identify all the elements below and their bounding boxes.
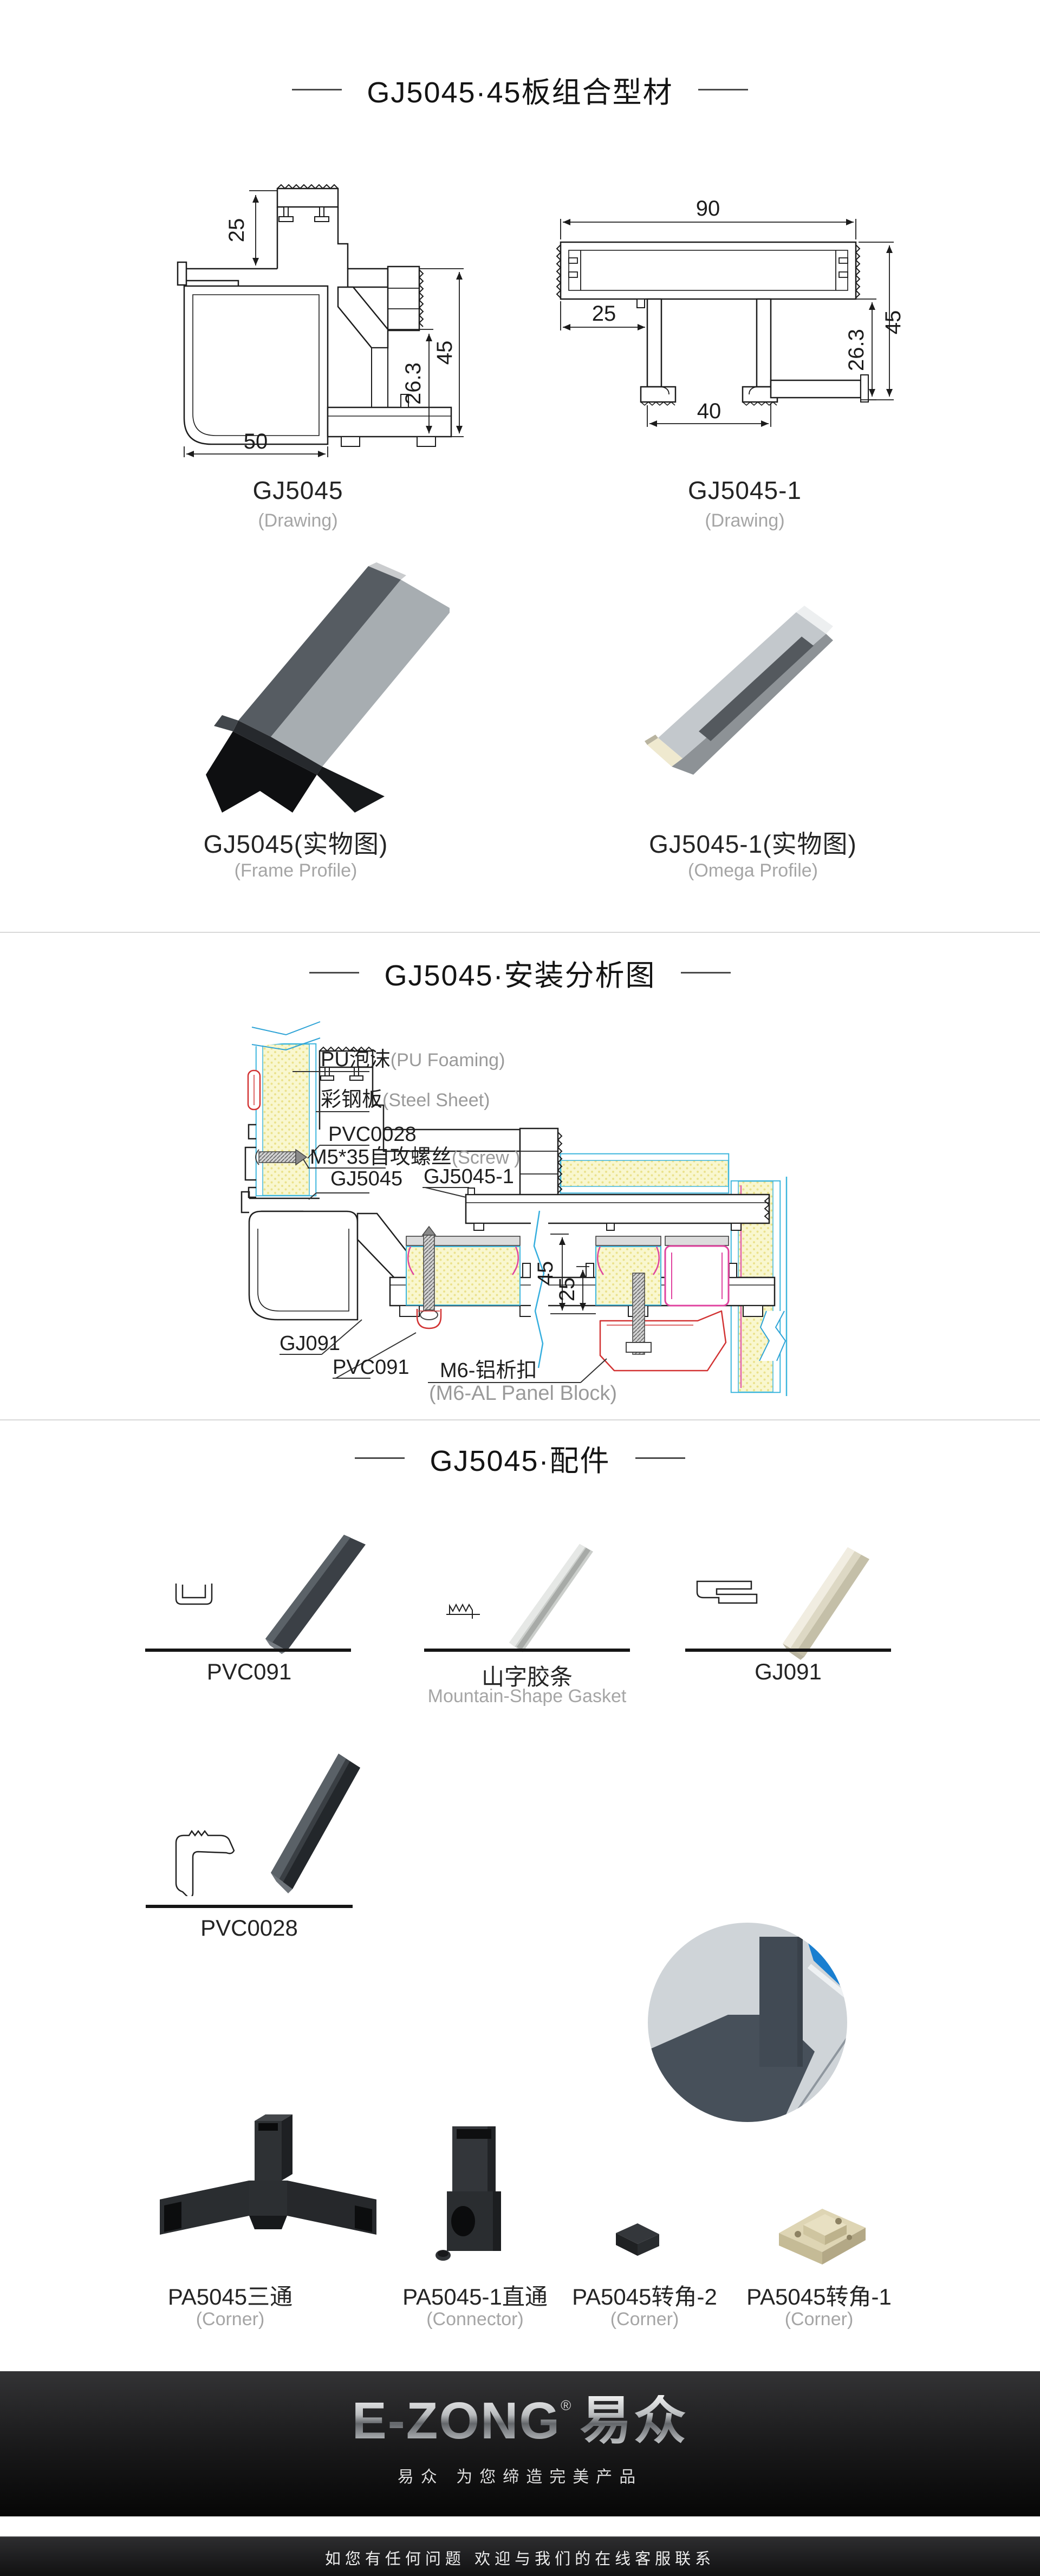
dim-45: 45 [433,341,457,365]
dim-50: 50 [244,430,268,453]
pa5045-corner-1-photo [773,2195,871,2268]
pa5045-corner-1-label-en: (Corner) [711,2309,927,2330]
dim-26-3: 26.3 [844,329,868,371]
title-dash-left [292,89,342,90]
section2-title-row: GJ5045·安装分析图 [0,953,1040,991]
anno-gj5045: GJ5045 [330,1167,402,1190]
anno-steel-sheet: 彩钢板(Steel Sheet) [321,1088,490,1111]
brand-logo: E-ZONG ® 易众 [352,2395,688,2447]
divider-1 [0,932,1040,933]
service-bar: 如您有任何问题 欢迎与我们的在线客服联系 [0,2536,1040,2576]
pvc0028-underline [146,1905,353,1908]
pa5045-corner-label: PA5045三通 [122,2279,339,2312]
horizontal-screw [256,1150,307,1165]
brand-logo-en: E-ZONG [352,2395,561,2447]
gj5045-1-photo [617,580,850,796]
anno-pu-foam: PU泡沫(PU Foaming) [321,1048,505,1071]
gj5045-section-drawing: 25 26.3 45 50 [162,157,477,460]
footer: E-ZONG ® 易众 易众 为您缔造完美产品 [0,2371,1040,2516]
top-panel [561,1154,729,1193]
dim-25: 25 [592,302,616,326]
dim-90: 90 [696,197,720,220]
gasket-section-icon [444,1597,482,1619]
title-dash-left [309,972,359,974]
gasket-underline [424,1649,630,1652]
pvc091-underline [145,1649,351,1652]
pa5045-corner-1-label: PA5045转角-1 [711,2279,927,2312]
installation-diagram: 45 25 PU泡沫(PU Foaming) 彩钢板(Steel Sheet) … [227,1018,856,1406]
gasket-label-en: Mountain-Shape Gasket [419,1686,635,1707]
photo1-sub: (Frame Profile) [187,860,404,881]
divider-2 [0,1419,1040,1420]
dim-26-3: 26.3 [401,362,425,405]
title-dash-right [681,972,731,974]
anno-m6-block-en: (M6-AL Panel Block) [429,1382,617,1405]
photo1-code: GJ5045(实物图) [187,825,404,860]
title-dash-right [698,89,748,90]
service-note: 如您有任何问题 欢迎与我们的在线客服联系 [325,2546,715,2569]
pvc0028-section-icon [171,1826,236,1896]
anno-m6-block: M6-铝析扣 [440,1359,537,1382]
section1-title-row: GJ5045·45板组合型材 [0,70,1040,108]
pa5045-1-connector-photo [433,2124,515,2264]
pvc091-section-icon [171,1574,219,1612]
photo2-code: GJ5045-1(实物图) [645,825,861,860]
photo2-sub: (Omega Profile) [645,860,861,881]
pa5045-corner-label-en: (Corner) [122,2309,339,2330]
section3-title-row: GJ5045·配件 [0,1439,1040,1477]
dim-45: 45 [881,310,905,335]
drawing2-sub: (Drawing) [636,510,853,531]
dim-25: 25 [225,218,249,243]
diagram-dim-25: 25 [555,1277,579,1302]
drawing1-code: GJ5045 [190,476,406,505]
anno-gj5045-1: GJ5045-1 [424,1165,514,1188]
gj091-photo [758,1543,888,1662]
gj5045-photo [157,558,450,813]
gj5045-1-profile [466,1188,769,1230]
left-panel [245,1020,320,1197]
brand-registered-mark: ® [561,2397,571,2414]
corner-detail-photo [647,1922,848,2123]
pa5045-corner-photo [144,2099,393,2267]
anno-gj091: GJ091 [279,1332,340,1355]
pa5045-corner-2-photo [608,2217,667,2260]
brand-tagline: 易众 为您缔造完美产品 [398,2463,643,2487]
section2-title: GJ5045·安装分析图 [384,951,655,994]
gj5045-1-section-drawing: 90 25 40 26.3 45 [531,191,905,445]
anno-pvc0028: PVC0028 [328,1123,417,1146]
gasket-photo [493,1539,612,1658]
brand-logo-cn: 易众 [580,2395,688,2447]
gj091-underline [685,1649,891,1652]
title-dash-left [355,1457,405,1459]
pvc0028-photo [244,1747,385,1899]
diagram-dim-45: 45 [534,1261,557,1286]
pvc091-label: PVC091 [141,1659,357,1685]
pvc0028-label: PVC0028 [141,1915,357,1941]
pvc091-photo [244,1530,385,1655]
catalog-page: GJ5045·45板组合型材 [0,0,1040,2576]
drawing2-code: GJ5045-1 [636,476,853,505]
section3-title: GJ5045·配件 [430,1437,610,1480]
anno-pvc091: PVC091 [333,1356,409,1379]
section1-title: GJ5045·45板组合型材 [367,68,673,111]
title-dash-right [635,1457,685,1459]
dim-40: 40 [697,399,721,423]
gj091-label: GJ091 [680,1659,896,1685]
drawing1-sub: (Drawing) [190,510,406,531]
